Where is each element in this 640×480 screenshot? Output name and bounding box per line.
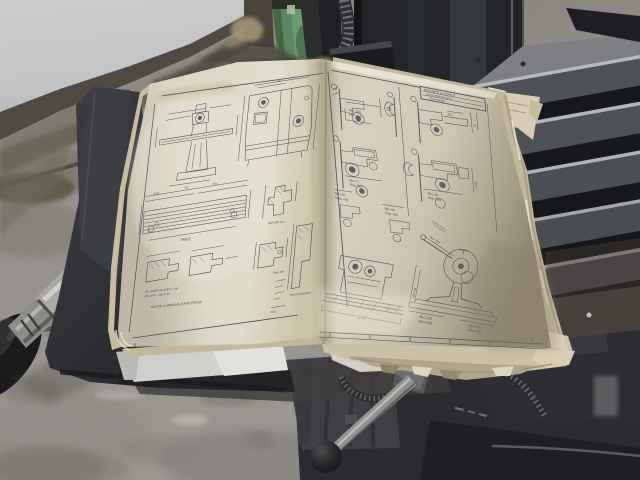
svg-text:1140: 1140	[276, 78, 282, 83]
svg-text:2175: 2175	[153, 191, 160, 196]
svg-text:2302: 2302	[271, 309, 278, 314]
